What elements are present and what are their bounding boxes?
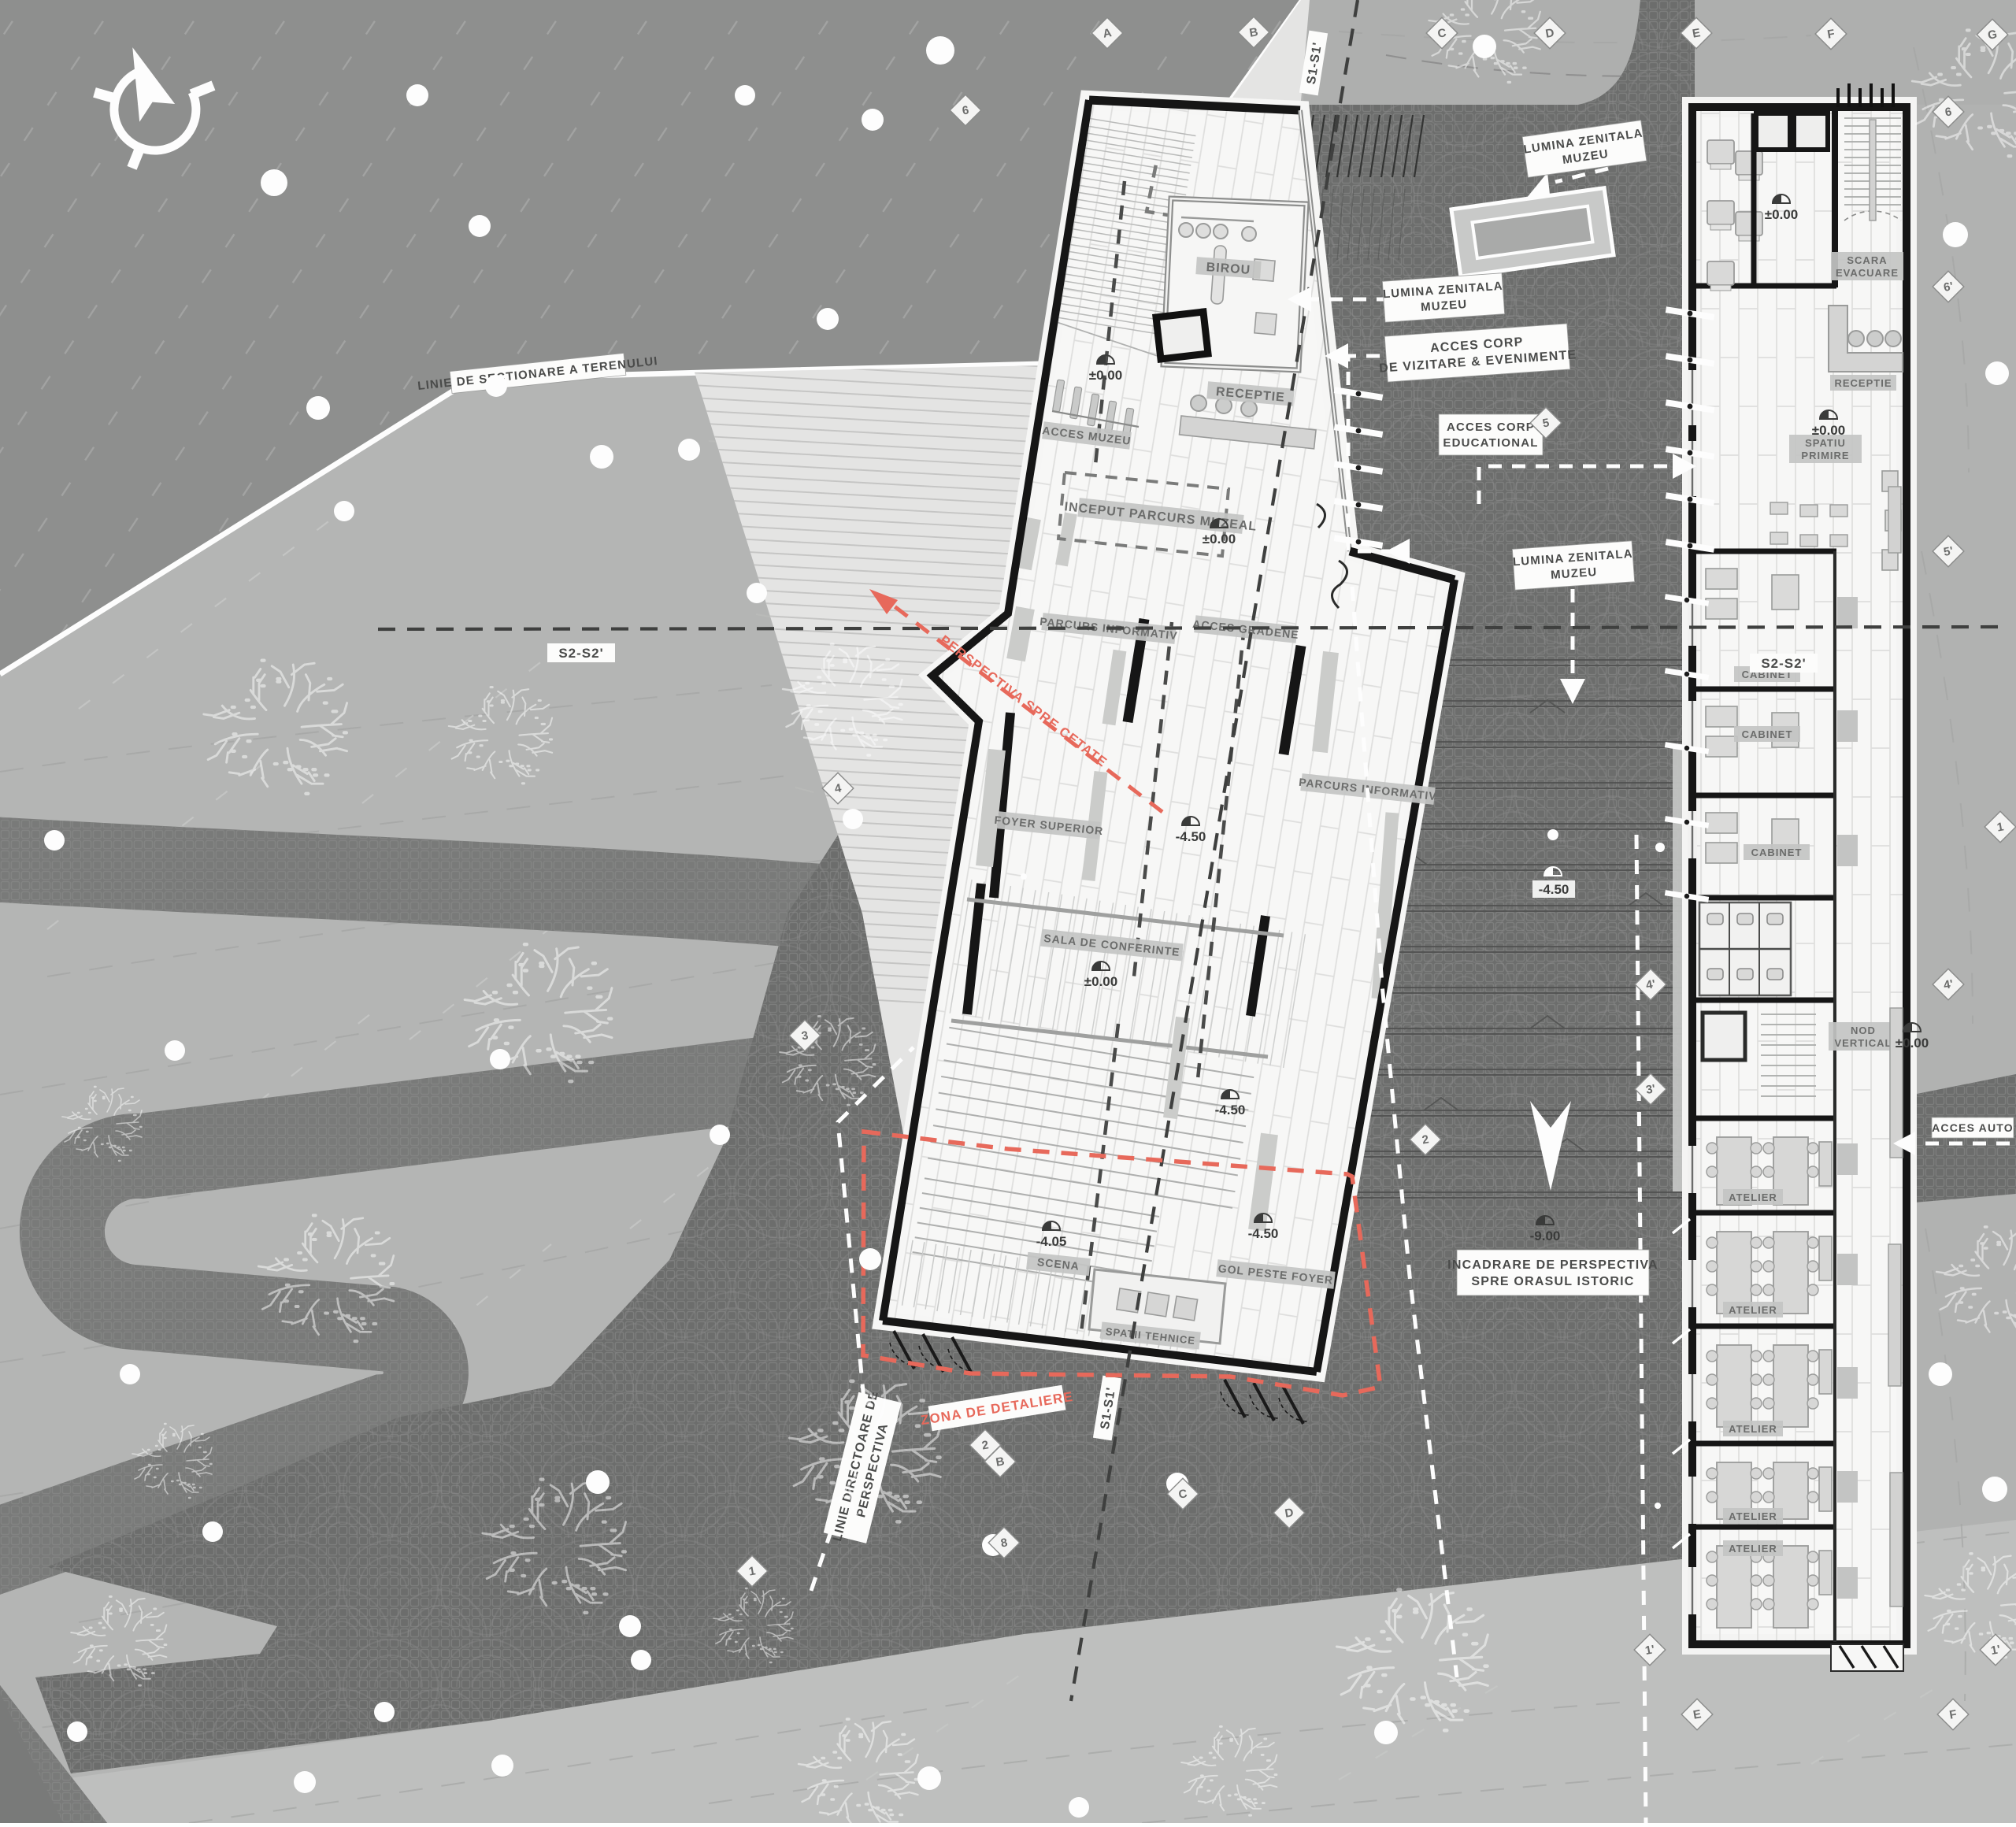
svg-text:ATELIER: ATELIER	[1729, 1510, 1777, 1522]
svg-text:S2-S2': S2-S2'	[1761, 656, 1806, 671]
svg-text:INCADRARE DE PERSPECTIVA: INCADRARE DE PERSPECTIVA	[1447, 1258, 1658, 1272]
svg-text:SPRE ORASUL ISTORIC: SPRE ORASUL ISTORIC	[1471, 1275, 1634, 1288]
svg-text:CABINET: CABINET	[1742, 728, 1793, 740]
svg-text:S2-S2': S2-S2'	[558, 646, 603, 661]
svg-text:±0.00: ±0.00	[1203, 532, 1236, 547]
svg-text:±0.00: ±0.00	[1896, 1036, 1929, 1051]
svg-text:SCARA: SCARA	[1847, 254, 1887, 266]
svg-text:-4.50: -4.50	[1248, 1226, 1279, 1241]
svg-text:-4.50: -4.50	[1215, 1102, 1246, 1117]
svg-text:NOD: NOD	[1851, 1025, 1876, 1036]
svg-text:-4.50: -4.50	[1176, 829, 1206, 844]
svg-text:ATELIER: ATELIER	[1729, 1423, 1777, 1435]
svg-text:±0.00: ±0.00	[1084, 974, 1117, 989]
svg-text:PRIMIRE: PRIMIRE	[1801, 450, 1849, 461]
svg-text:VERTICAL: VERTICAL	[1835, 1037, 1892, 1049]
svg-text:ATELIER: ATELIER	[1729, 1304, 1777, 1316]
svg-text:-9.00: -9.00	[1530, 1228, 1561, 1243]
svg-text:EVACUARE: EVACUARE	[1836, 267, 1899, 279]
svg-text:ACCES AUTO: ACCES AUTO	[1932, 1121, 2014, 1134]
svg-text:ATELIER: ATELIER	[1729, 1191, 1777, 1203]
svg-text:EDUCATIONAL: EDUCATIONAL	[1443, 436, 1538, 450]
svg-text:-4.50: -4.50	[1539, 882, 1569, 897]
svg-text:CABINET: CABINET	[1751, 847, 1803, 858]
svg-text:±0.00: ±0.00	[1765, 207, 1798, 222]
svg-text:ACCES CORP: ACCES CORP	[1447, 421, 1535, 434]
svg-text:SPATIU: SPATIU	[1805, 437, 1846, 449]
svg-text:ATELIER: ATELIER	[1729, 1543, 1777, 1555]
svg-text:±0.00: ±0.00	[1089, 368, 1122, 383]
svg-text:RECEPTIE: RECEPTIE	[1834, 377, 1892, 389]
svg-text:-4.05: -4.05	[1036, 1234, 1067, 1249]
svg-text:±0.00: ±0.00	[1812, 423, 1845, 438]
